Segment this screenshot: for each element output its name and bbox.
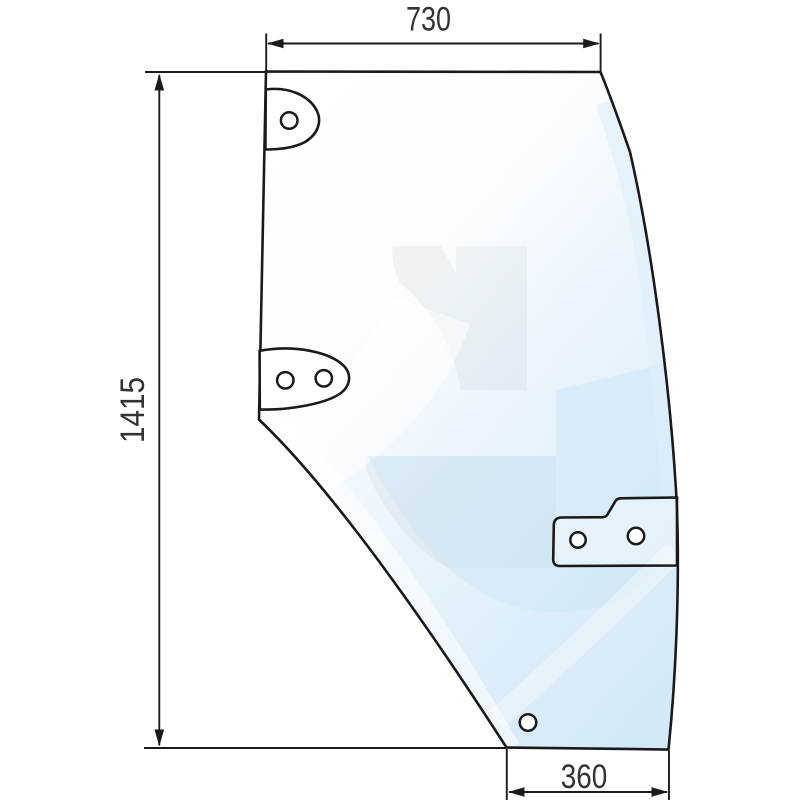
- svg-text:1415: 1415: [114, 377, 152, 443]
- svg-text:730: 730: [406, 1, 451, 39]
- svg-text:360: 360: [561, 758, 608, 796]
